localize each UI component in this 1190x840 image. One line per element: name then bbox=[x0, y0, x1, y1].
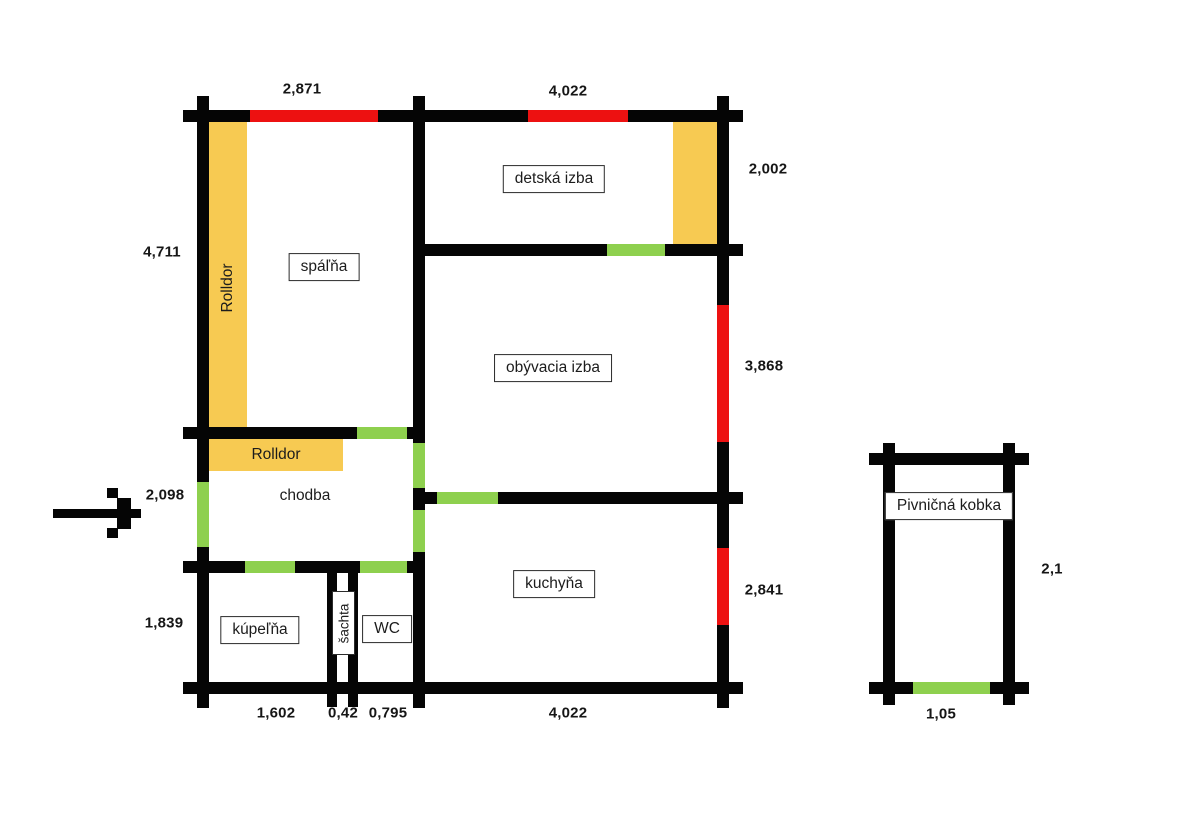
window-spalna bbox=[250, 110, 378, 122]
wardrobe-label-spalna-rolldor: Rolldor bbox=[219, 263, 237, 312]
window-kuchyna bbox=[717, 548, 729, 625]
wall-exterior-left bbox=[197, 96, 209, 708]
dimension-chodba-height: 2,098 bbox=[146, 487, 185, 504]
dimension-obyvacia-izba-height: 3,868 bbox=[745, 358, 784, 375]
wall-pivnica-right bbox=[1003, 443, 1015, 705]
entrance-arrow-icon bbox=[50, 485, 146, 543]
wall-exterior-bottom bbox=[183, 682, 743, 694]
dimension-spalna-width: 2,871 bbox=[283, 81, 322, 98]
room-label-kupelna: kúpeľňa bbox=[220, 616, 299, 644]
wardrobe-label-chodba-rolldor: Rolldor bbox=[251, 446, 300, 464]
door-detska-izba bbox=[607, 244, 665, 256]
dimension-detska-izba-width: 4,022 bbox=[549, 83, 588, 100]
room-label-chodba: chodba bbox=[280, 487, 331, 505]
room-label-wc: WC bbox=[362, 615, 412, 643]
sachta-label-text: šachta bbox=[336, 603, 351, 643]
door-entrance bbox=[197, 482, 209, 547]
window-obyvacia-izba bbox=[717, 305, 729, 442]
floor-plan: spáľňa detská izba obývacia izba kuchyňa… bbox=[0, 0, 1190, 840]
room-label-kuchyna: kuchyňa bbox=[513, 570, 595, 598]
dimension-kuchyna-width: 4,022 bbox=[549, 705, 588, 722]
door-pivnicna-kobka bbox=[913, 682, 990, 694]
room-label-pivnicna-kobka: Pivničná kobka bbox=[885, 492, 1013, 520]
door-spalna bbox=[357, 427, 407, 439]
door-wc bbox=[360, 561, 407, 573]
room-label-sachta: šachta bbox=[332, 591, 355, 655]
dimension-pivnica-width: 1,05 bbox=[926, 706, 956, 723]
wardrobe-detska-izba bbox=[673, 122, 717, 244]
door-kupelna bbox=[245, 561, 295, 573]
window-detska-izba bbox=[528, 110, 628, 122]
dimension-spalna-height: 4,711 bbox=[143, 244, 181, 261]
door-obyvacia-izba bbox=[413, 443, 425, 488]
room-label-obyvacia-izba: obývacia izba bbox=[494, 354, 612, 382]
wall-detska-obyvacia bbox=[413, 244, 743, 256]
dimension-kupelna-width: 1,602 bbox=[257, 705, 296, 722]
dimension-sachta-width: 0,42 bbox=[328, 705, 358, 722]
wall-pivnica-left bbox=[883, 443, 895, 705]
room-label-detska-izba: detská izba bbox=[503, 165, 605, 193]
door-obyvacia-kuchyna bbox=[437, 492, 498, 504]
dimension-kuchyna-height: 2,841 bbox=[745, 582, 784, 599]
dimension-wc-width: 0,795 bbox=[369, 705, 408, 722]
dimension-kupelna-height: 1,839 bbox=[145, 615, 184, 632]
dimension-pivnica-height: 2,1 bbox=[1041, 561, 1062, 578]
room-label-spalna: spáľňa bbox=[289, 253, 360, 281]
door-kuchyna bbox=[413, 510, 425, 552]
dimension-detska-izba-height: 2,002 bbox=[749, 161, 788, 178]
wall-interior-vertical bbox=[413, 96, 425, 708]
